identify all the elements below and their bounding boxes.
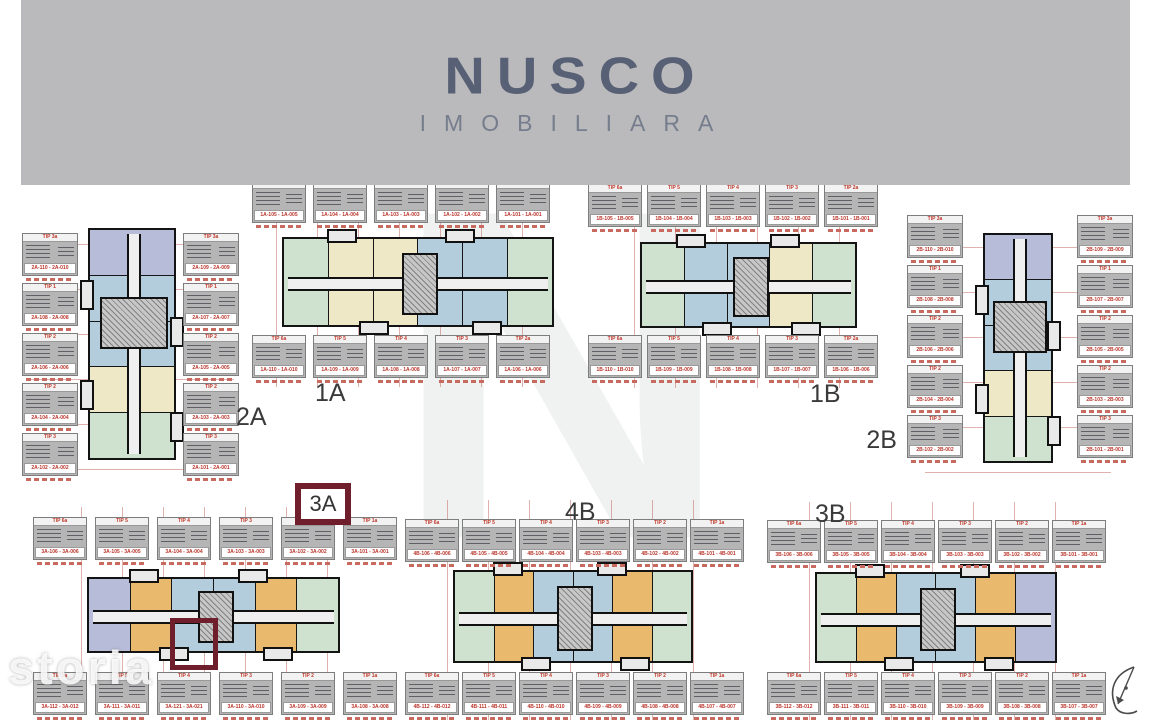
unit-type-label: TIP 3: [220, 673, 272, 681]
unit-spec-text: [589, 344, 641, 364]
building-code: 4B: [565, 498, 596, 527]
unit-area-numbers: [26, 278, 74, 281]
storia-watermark: storia: [8, 640, 154, 695]
unit-area-numbers: [26, 478, 74, 481]
unit-label-card: TIP 1a3B-101 - 3B-001: [1052, 520, 1106, 568]
unit-spec-text: [908, 424, 962, 444]
unit-range-label: 4B-102 - 4B-002: [635, 549, 685, 560]
unit-label-box: TIP 6a3A-106 - 3A-006: [33, 517, 87, 560]
unit-spec-text: [220, 681, 272, 701]
unit-range-label: 3B-103 - 3B-003: [940, 550, 990, 561]
building-1a: TIP 6a1A-105 - 1A-005TIP 51A-104 - 1A-00…: [282, 237, 554, 327]
unit-label-card: TIP 12B-108 - 2B-008: [907, 265, 963, 313]
unit-range-label: 4B-111 - 4B-011: [464, 702, 514, 713]
unit-label-box: TIP 3a2B-109 - 2B-009: [1077, 215, 1133, 258]
unit-label-card: TIP 51B-104 - 1B-004: [647, 184, 701, 232]
unit-label-card: TIP 22B-105 - 2B-005: [1077, 315, 1133, 363]
unit-area-numbers: [769, 380, 815, 383]
unit-spec-text: [996, 529, 1048, 549]
unit-spec-text: [23, 242, 77, 262]
unit-label-box: TIP 22B-103 - 2B-003: [1077, 365, 1133, 408]
unit-type-label: TIP 1a: [344, 518, 396, 526]
unit-label-card: TIP 54B-111 - 4B-011: [462, 672, 516, 720]
unit-label-box: TIP 6a3B-112 - 3B-012: [767, 672, 821, 715]
unit-type-label: TIP 3: [436, 336, 488, 344]
unit-type-label: TIP 2: [634, 673, 686, 681]
unit-area-numbers: [439, 380, 485, 383]
stair-core: [402, 253, 438, 315]
unit-label-card: TIP 41A-103 - 1A-003: [374, 180, 428, 228]
unit-range-label: 1A-110 - 1A-010: [254, 365, 304, 376]
unit-range-label: 2A-110 - 2A-010: [24, 263, 76, 274]
unit-spec-text: [520, 528, 572, 548]
balcony-bump: [1047, 321, 1061, 351]
unit-spec-text: [1078, 324, 1132, 344]
unit-range-label: 3A-102 - 3A-002: [283, 547, 333, 558]
unit-type-label: TIP 1a: [1053, 521, 1105, 529]
unit-label-card: TIP 6a3B-112 - 3B-012: [767, 672, 821, 720]
balcony-bump: [472, 321, 502, 335]
unit-label-card: TIP 43B-110 - 3B-010: [881, 672, 935, 720]
unit-label-card: TIP 53A-105 - 3A-005: [95, 517, 149, 565]
unit-label-box: TIP 43A-121 - 3A-021: [157, 672, 211, 715]
unit-label-box: TIP 32B-102 - 2B-002: [907, 415, 963, 458]
unit-type-label: TIP 3: [184, 434, 238, 442]
balcony-bump: [702, 322, 732, 336]
unit-label-card: TIP 43A-121 - 3A-021: [157, 672, 211, 720]
unit-spec-text: [648, 344, 700, 364]
unit-label-box: TIP 2a1B-101 - 1B-001: [824, 184, 878, 227]
balcony-bump: [445, 229, 475, 243]
unit-range-label: 1A-108 - 1A-008: [376, 365, 426, 376]
unit-range-label: 1A-107 - 1A-007: [437, 365, 487, 376]
unit-area-numbers: [592, 229, 638, 232]
unit-range-label: 1B-109 - 1B-009: [649, 365, 699, 376]
unit-area-numbers: [187, 278, 235, 281]
unit-label-card: TIP 1a4B-107 - 4B-007: [690, 672, 744, 720]
unit-spec-text: [406, 528, 458, 548]
unit-label-box: TIP 54B-105 - 4B-005: [462, 519, 516, 562]
unit-spec-text: [707, 344, 759, 364]
unit-spec-text: [908, 374, 962, 394]
unit-label-box: TIP 31B-107 - 1B-007: [765, 335, 819, 378]
unit-area-numbers: [580, 564, 626, 567]
unit-spec-text: [314, 189, 366, 209]
unit-type-label: TIP 2a: [825, 336, 877, 344]
unit-area-numbers: [710, 229, 756, 232]
unit-label-card: TIP 22B-103 - 2B-003: [1077, 365, 1133, 413]
unit-spec-text: [23, 392, 77, 412]
unit-label-box: TIP 51B-109 - 1B-009: [647, 335, 701, 378]
unit-type-label: TIP 3a: [1078, 216, 1132, 224]
unit-range-label: 4B-110 - 4B-010: [521, 702, 571, 713]
unit-type-label: TIP 4: [707, 185, 759, 193]
building-4b: TIP 6a4B-106 - 4B-006TIP 54B-105 - 4B-00…: [453, 570, 693, 663]
unit-area-numbers: [347, 562, 393, 565]
unit-type-label: TIP 4: [882, 521, 934, 529]
unit-label-box: TIP 22A-106 - 2A-006: [22, 333, 78, 376]
unit-label-card: TIP 33B-109 - 3B-009: [938, 672, 992, 720]
unit-type-label: TIP 4: [158, 518, 210, 526]
unit-label-box: TIP 1a3A-101 - 3A-001: [343, 517, 397, 560]
unit-spec-text: [1053, 529, 1105, 549]
unit-type-label: TIP 5: [463, 673, 515, 681]
unit-label-box: TIP 12B-108 - 2B-008: [907, 265, 963, 308]
unit-type-label: TIP 2: [1078, 366, 1132, 374]
unit-label-box: TIP 51B-104 - 1B-004: [647, 184, 701, 227]
unit-range-label: 4B-104 - 4B-004: [521, 549, 571, 560]
unit-range-label: 3B-107 - 3B-007: [1054, 702, 1104, 713]
unit-label-box: TIP 41A-103 - 1A-003: [374, 180, 428, 223]
unit-range-label: 3B-102 - 3B-002: [997, 550, 1047, 561]
unit-label-box: TIP 3a2B-110 - 2B-010: [907, 215, 963, 258]
unit-range-label: 1B-106 - 1B-006: [826, 365, 876, 376]
label-group-bottom: TIP 6a1B-110 - 1B-010TIP 51B-109 - 1B-00…: [588, 335, 878, 383]
unit-spec-text: [23, 292, 77, 312]
building-4b-plan: [453, 570, 693, 663]
unit-spec-text: [691, 681, 743, 701]
unit-range-label: 1A-106 - 1A-006: [498, 365, 548, 376]
unit-label-box: TIP 12A-108 - 2A-008: [22, 283, 78, 326]
unit-spec-text: [497, 189, 549, 209]
unit-label-box: TIP 22B-106 - 2B-006: [907, 315, 963, 358]
unit-label-card: TIP 53B-111 - 3B-011: [824, 672, 878, 720]
unit-range-label: 3B-105 - 3B-005: [826, 550, 876, 561]
unit-area-numbers: [710, 380, 756, 383]
unit-range-label: 3A-103 - 3A-003: [221, 547, 271, 558]
unit-type-label: TIP 4: [882, 673, 934, 681]
unit-range-label: 1A-109 - 1A-009: [315, 365, 365, 376]
unit-area-numbers: [26, 378, 74, 381]
unit-type-label: TIP 6a: [589, 185, 641, 193]
unit-type-label: TIP 5: [314, 336, 366, 344]
unit-area-numbers: [911, 310, 959, 313]
balcony-bump: [521, 657, 551, 671]
unit-type-label: TIP 2a: [825, 185, 877, 193]
unit-label-card: TIP 3a2B-110 - 2B-010: [907, 215, 963, 263]
unit-label-box: TIP 51A-104 - 1A-004: [313, 180, 367, 223]
unit-spec-text: [1078, 374, 1132, 394]
unit-type-label: TIP 2: [908, 316, 962, 324]
unit-spec-text: [1053, 681, 1105, 701]
unit-spec-text: [282, 681, 334, 701]
unit-label-card: TIP 23B-108 - 3B-008: [995, 672, 1049, 720]
unit-label-card: TIP 6a1A-110 - 1A-010: [252, 335, 306, 383]
unit-range-label: 3B-112 - 3B-012: [769, 702, 819, 713]
unit-type-label: TIP 5: [463, 520, 515, 528]
unit-type-label: TIP 3a: [23, 234, 77, 242]
unit-area-numbers: [161, 562, 207, 565]
unit-type-label: TIP 2: [996, 521, 1048, 529]
unit-label-box: TIP 1a3A-108 - 3A-008: [343, 672, 397, 715]
unit-area-numbers: [439, 225, 485, 228]
unit-type-label: TIP 1a: [1053, 673, 1105, 681]
unit-area-numbers: [942, 565, 988, 568]
unit-range-label: 2B-101 - 2B-001: [1079, 445, 1131, 456]
unit-range-label: 1A-104 - 1A-004: [315, 210, 365, 221]
unit-type-label: TIP 3: [766, 336, 818, 344]
unit-type-label: TIP 3: [23, 434, 77, 442]
unit-range-label: 3A-104 - 3A-004: [159, 547, 209, 558]
building-1b: TIP 6a1B-105 - 1B-005TIP 51B-104 - 1B-00…: [640, 242, 857, 328]
unit-label-card: TIP 31B-107 - 1B-007: [765, 335, 819, 383]
unit-label-card: TIP 33A-103 - 3A-003: [219, 517, 273, 565]
unit-label-box: TIP 43B-104 - 3B-004: [881, 520, 935, 563]
unit-type-label: TIP 6a: [406, 520, 458, 528]
unit-area-numbers: [187, 428, 235, 431]
unit-label-box: TIP 33B-103 - 3B-003: [938, 520, 992, 563]
unit-type-label: TIP 3: [577, 673, 629, 681]
unit-label-box: TIP 22B-105 - 2B-005: [1077, 315, 1133, 358]
unit-label-card: TIP 23A-109 - 3A-009: [281, 672, 335, 720]
label-group-top: TIP 6a1A-105 - 1A-005TIP 51A-104 - 1A-00…: [252, 180, 550, 228]
unit-area-numbers: [500, 380, 546, 383]
unit-label-card: TIP 1a4B-101 - 4B-001: [690, 519, 744, 567]
unit-range-label: 4B-109 - 4B-009: [578, 702, 628, 713]
unit-label-box: TIP 6a1A-105 - 1A-005: [252, 180, 306, 223]
unit-range-label: 3B-110 - 3B-010: [883, 702, 933, 713]
unit-area-numbers: [769, 229, 815, 232]
building-code: 3B: [815, 500, 846, 529]
unit-label-card: TIP 34B-109 - 4B-009: [576, 672, 630, 720]
unit-type-label: TIP 3: [908, 416, 962, 424]
building-code-highlight-box: 3A: [295, 483, 351, 525]
unit-type-label: TIP 4: [158, 673, 210, 681]
unit-area-numbers: [523, 564, 569, 567]
unit-type-label: TIP 1: [184, 284, 238, 292]
unit-range-label: 2A-107 - 2A-007: [185, 313, 237, 324]
unit-label-box: TIP 24B-102 - 4B-002: [633, 519, 687, 562]
unit-type-label: TIP 3: [939, 521, 991, 529]
unit-range-label: 1A-101 - 1A-001: [498, 210, 548, 221]
unit-area-numbers: [911, 260, 959, 263]
unit-label-card: TIP 1a3A-101 - 3A-001: [343, 517, 397, 565]
unit-range-label: 1B-102 - 1B-002: [767, 214, 817, 225]
balcony-bump: [263, 647, 293, 661]
building-1a-plan: [282, 237, 554, 327]
unit-range-label: 3A-108 - 3A-008: [345, 702, 395, 713]
unit-label-box: TIP 2a1A-101 - 1A-001: [496, 180, 550, 223]
unit-label-box: TIP 6a1B-105 - 1B-005: [588, 184, 642, 227]
unit-spec-text: [882, 681, 934, 701]
unit-label-box: TIP 32A-102 - 2A-002: [22, 433, 78, 476]
balcony-bump: [170, 317, 184, 347]
unit-range-label: 4B-108 - 4B-008: [635, 702, 685, 713]
unit-spec-text: [520, 681, 572, 701]
unit-label-box: TIP 2a1B-106 - 1B-006: [824, 335, 878, 378]
unit-range-label: 1B-110 - 1B-010: [590, 365, 640, 376]
unit-range-label: 2A-103 - 2A-003: [185, 413, 237, 424]
label-group-left: TIP 3a2A-110 - 2A-010TIP 12A-108 - 2A-00…: [22, 233, 78, 481]
unit-label-box: TIP 41B-108 - 1B-008: [706, 335, 760, 378]
label-group-right: TIP 3a2B-109 - 2B-009TIP 12B-107 - 2B-00…: [1077, 215, 1133, 463]
unit-spec-text: [184, 392, 238, 412]
unit-label-card: TIP 6a1A-105 - 1A-005: [252, 180, 306, 228]
unit-area-numbers: [317, 225, 363, 228]
unit-range-label: 4B-112 - 4B-012: [407, 702, 457, 713]
unit-area-numbers: [256, 380, 302, 383]
stair-core: [733, 257, 769, 317]
unit-label-box: TIP 6a1B-110 - 1B-010: [588, 335, 642, 378]
unit-label-box: TIP 22A-105 - 2A-005: [183, 333, 239, 376]
building-2b-plan: [983, 233, 1053, 463]
unit-label-card: TIP 41B-108 - 1B-008: [706, 335, 760, 383]
unit-range-label: 2B-109 - 2B-009: [1079, 245, 1131, 256]
balcony-bump: [170, 412, 184, 442]
unit-label-box: TIP 33B-109 - 3B-009: [938, 672, 992, 715]
unit-range-label: 3A-121 - 3A-021: [159, 702, 209, 713]
unit-type-label: TIP 1a: [344, 673, 396, 681]
building-1b-plan: [640, 242, 857, 328]
brand-name: NUSCO: [444, 50, 706, 102]
unit-label-box: TIP 23B-108 - 3B-008: [995, 672, 1049, 715]
unit-type-label: TIP 6a: [406, 673, 458, 681]
unit-label-card: TIP 6a4B-106 - 4B-006: [405, 519, 459, 567]
unit-type-label: TIP 2: [996, 673, 1048, 681]
building-3b: TIP 6a3B-106 - 3B-006TIP 53B-105 - 3B-00…: [815, 572, 1057, 663]
balcony-bump: [1047, 416, 1061, 446]
unit-range-label: 2A-105 - 2A-005: [185, 363, 237, 374]
unit-label-card: TIP 32B-101 - 2B-001: [1077, 415, 1133, 463]
building-3b-plan: [815, 572, 1057, 663]
unit-label-card: TIP 22B-106 - 2B-006: [907, 315, 963, 363]
unit-spec-text: [282, 526, 334, 546]
unit-label-card: TIP 24B-102 - 4B-002: [633, 519, 687, 567]
unit-label-box: TIP 34B-109 - 4B-009: [576, 672, 630, 715]
unit-area-numbers: [187, 328, 235, 331]
unit-label-card: TIP 41B-103 - 1B-003: [706, 184, 760, 232]
balcony-bump: [327, 229, 357, 243]
unit-type-label: TIP 5: [96, 518, 148, 526]
unit-label-box: TIP 6a1A-110 - 1A-010: [252, 335, 306, 378]
unit-spec-text: [939, 681, 991, 701]
unit-area-numbers: [500, 225, 546, 228]
unit-spec-text: [691, 528, 743, 548]
unit-type-label: TIP 6a: [768, 521, 820, 529]
stair-core: [920, 588, 956, 651]
unit-type-label: TIP 3: [220, 518, 272, 526]
unit-label-card: TIP 2a1A-101 - 1A-001: [496, 180, 550, 228]
unit-range-label: 2B-105 - 2B-005: [1079, 345, 1131, 356]
unit-area-numbers: [885, 565, 931, 568]
unit-spec-text: [184, 342, 238, 362]
building-2a-plan: [88, 228, 176, 460]
unit-type-label: TIP 2: [634, 520, 686, 528]
unit-spec-text: [766, 193, 818, 213]
unit-label-card: TIP 22A-104 - 2A-004: [22, 383, 78, 431]
unit-type-label: TIP 2: [23, 384, 77, 392]
unit-range-label: 1B-104 - 1B-004: [649, 214, 699, 225]
unit-range-label: 3B-111 - 3B-011: [826, 702, 876, 713]
balcony-bump: [984, 657, 1014, 671]
unit-area-numbers: [592, 380, 638, 383]
unit-label-box: TIP 24B-108 - 4B-008: [633, 672, 687, 715]
unit-range-label: 1B-101 - 1B-001: [826, 214, 876, 225]
unit-type-label: TIP 3a: [184, 234, 238, 242]
unit-area-numbers: [771, 565, 817, 568]
unit-range-label: 2A-104 - 2A-004: [24, 413, 76, 424]
balcony-bump: [359, 321, 389, 335]
unit-type-label: TIP 6a: [589, 336, 641, 344]
unit-label-card: TIP 2a1B-106 - 1B-006: [824, 335, 878, 383]
unit-label-box: TIP 53B-111 - 3B-011: [824, 672, 878, 715]
unit-type-label: TIP 5: [648, 336, 700, 344]
balcony-bump: [770, 234, 800, 248]
unit-spec-text: [707, 193, 759, 213]
unit-spec-text: [184, 242, 238, 262]
label-group-right: TIP 3a2A-109 - 2A-009TIP 12A-107 - 2A-00…: [183, 233, 239, 481]
unit-label-box: TIP 33A-110 - 3A-010: [219, 672, 273, 715]
unit-label-card: TIP 32A-102 - 2A-002: [22, 433, 78, 481]
unit-label-card: TIP 2a1A-106 - 1A-006: [496, 335, 550, 383]
unit-spec-text: [406, 681, 458, 701]
unit-type-label: TIP 3a: [908, 216, 962, 224]
unit-label-card: TIP 6a1B-110 - 1B-010: [588, 335, 642, 383]
unit-spec-text: [344, 681, 396, 701]
unit-label-box: TIP 12A-107 - 2A-007: [183, 283, 239, 326]
unit-spec-text: [96, 526, 148, 546]
unit-range-label: 1A-103 - 1A-003: [376, 210, 426, 221]
brand-tagline: IMOBILIARA: [420, 110, 732, 137]
unit-range-label: 3A-101 - 3A-001: [345, 547, 395, 558]
unit-spec-text: [939, 529, 991, 549]
unit-label-card: TIP 22B-104 - 2B-004: [907, 365, 963, 413]
unit-range-label: 1B-103 - 1B-003: [708, 214, 758, 225]
unit-range-label: 2A-106 - 2A-006: [24, 363, 76, 374]
unit-area-numbers: [637, 564, 683, 567]
unit-range-label: 3B-101 - 3B-001: [1054, 550, 1104, 561]
unit-range-label: 2B-110 - 2B-010: [909, 245, 961, 256]
unit-area-numbers: [409, 564, 455, 567]
unit-range-label: 2A-102 - 2A-002: [24, 463, 76, 474]
unit-label-box: TIP 43B-110 - 3B-010: [881, 672, 935, 715]
unit-area-numbers: [187, 378, 235, 381]
unit-label-card: TIP 51A-109 - 1A-009: [313, 335, 367, 383]
building-2b: TIP 3a2B-110 - 2B-010TIP 12B-108 - 2B-00…: [983, 233, 1053, 463]
unit-range-label: 1B-108 - 1B-008: [708, 365, 758, 376]
unit-label-card: TIP 12A-107 - 2A-007: [183, 283, 239, 331]
label-group-bottom: TIP 6a1A-110 - 1A-010TIP 51A-109 - 1A-00…: [252, 335, 550, 383]
unit-range-label: 3B-109 - 3B-009: [940, 702, 990, 713]
unit-label-card: TIP 12B-107 - 2B-007: [1077, 265, 1133, 313]
unit-label-box: TIP 6a4B-106 - 4B-006: [405, 519, 459, 562]
unit-type-label: TIP 4: [520, 673, 572, 681]
unit-spec-text: [184, 292, 238, 312]
balcony-bump: [620, 657, 650, 671]
unit-type-label: TIP 5: [825, 673, 877, 681]
unit-spec-text: [253, 344, 305, 364]
unit-spec-text: [768, 529, 820, 549]
unit-range-label: 3A-109 - 3A-009: [283, 702, 333, 713]
unit-label-box: TIP 3a2A-109 - 2A-009: [183, 233, 239, 276]
unit-label-box: TIP 22A-104 - 2A-004: [22, 383, 78, 426]
unit-type-label: TIP 4: [707, 336, 759, 344]
unit-label-box: TIP 31A-107 - 1A-007: [435, 335, 489, 378]
unit-spec-text: [825, 344, 877, 364]
unit-label-card: TIP 41A-108 - 1A-008: [374, 335, 428, 383]
unit-label-card: TIP 6a4B-112 - 4B-012: [405, 672, 459, 720]
unit-area-numbers: [37, 562, 83, 565]
unit-label-card: TIP 6a1B-105 - 1B-005: [588, 184, 642, 232]
unit-range-label: 1B-105 - 1B-005: [590, 214, 640, 225]
unit-label-box: TIP 1a3B-101 - 3B-001: [1052, 520, 1106, 563]
unit-area-numbers: [694, 564, 740, 567]
unit-label-box: TIP 43A-104 - 3A-004: [157, 517, 211, 560]
unit-label-card: TIP 32B-102 - 2B-002: [907, 415, 963, 463]
unit-spec-text: [23, 342, 77, 362]
unit-spec-text: [577, 528, 629, 548]
unit-label-box: TIP 32B-101 - 2B-001: [1077, 415, 1133, 458]
